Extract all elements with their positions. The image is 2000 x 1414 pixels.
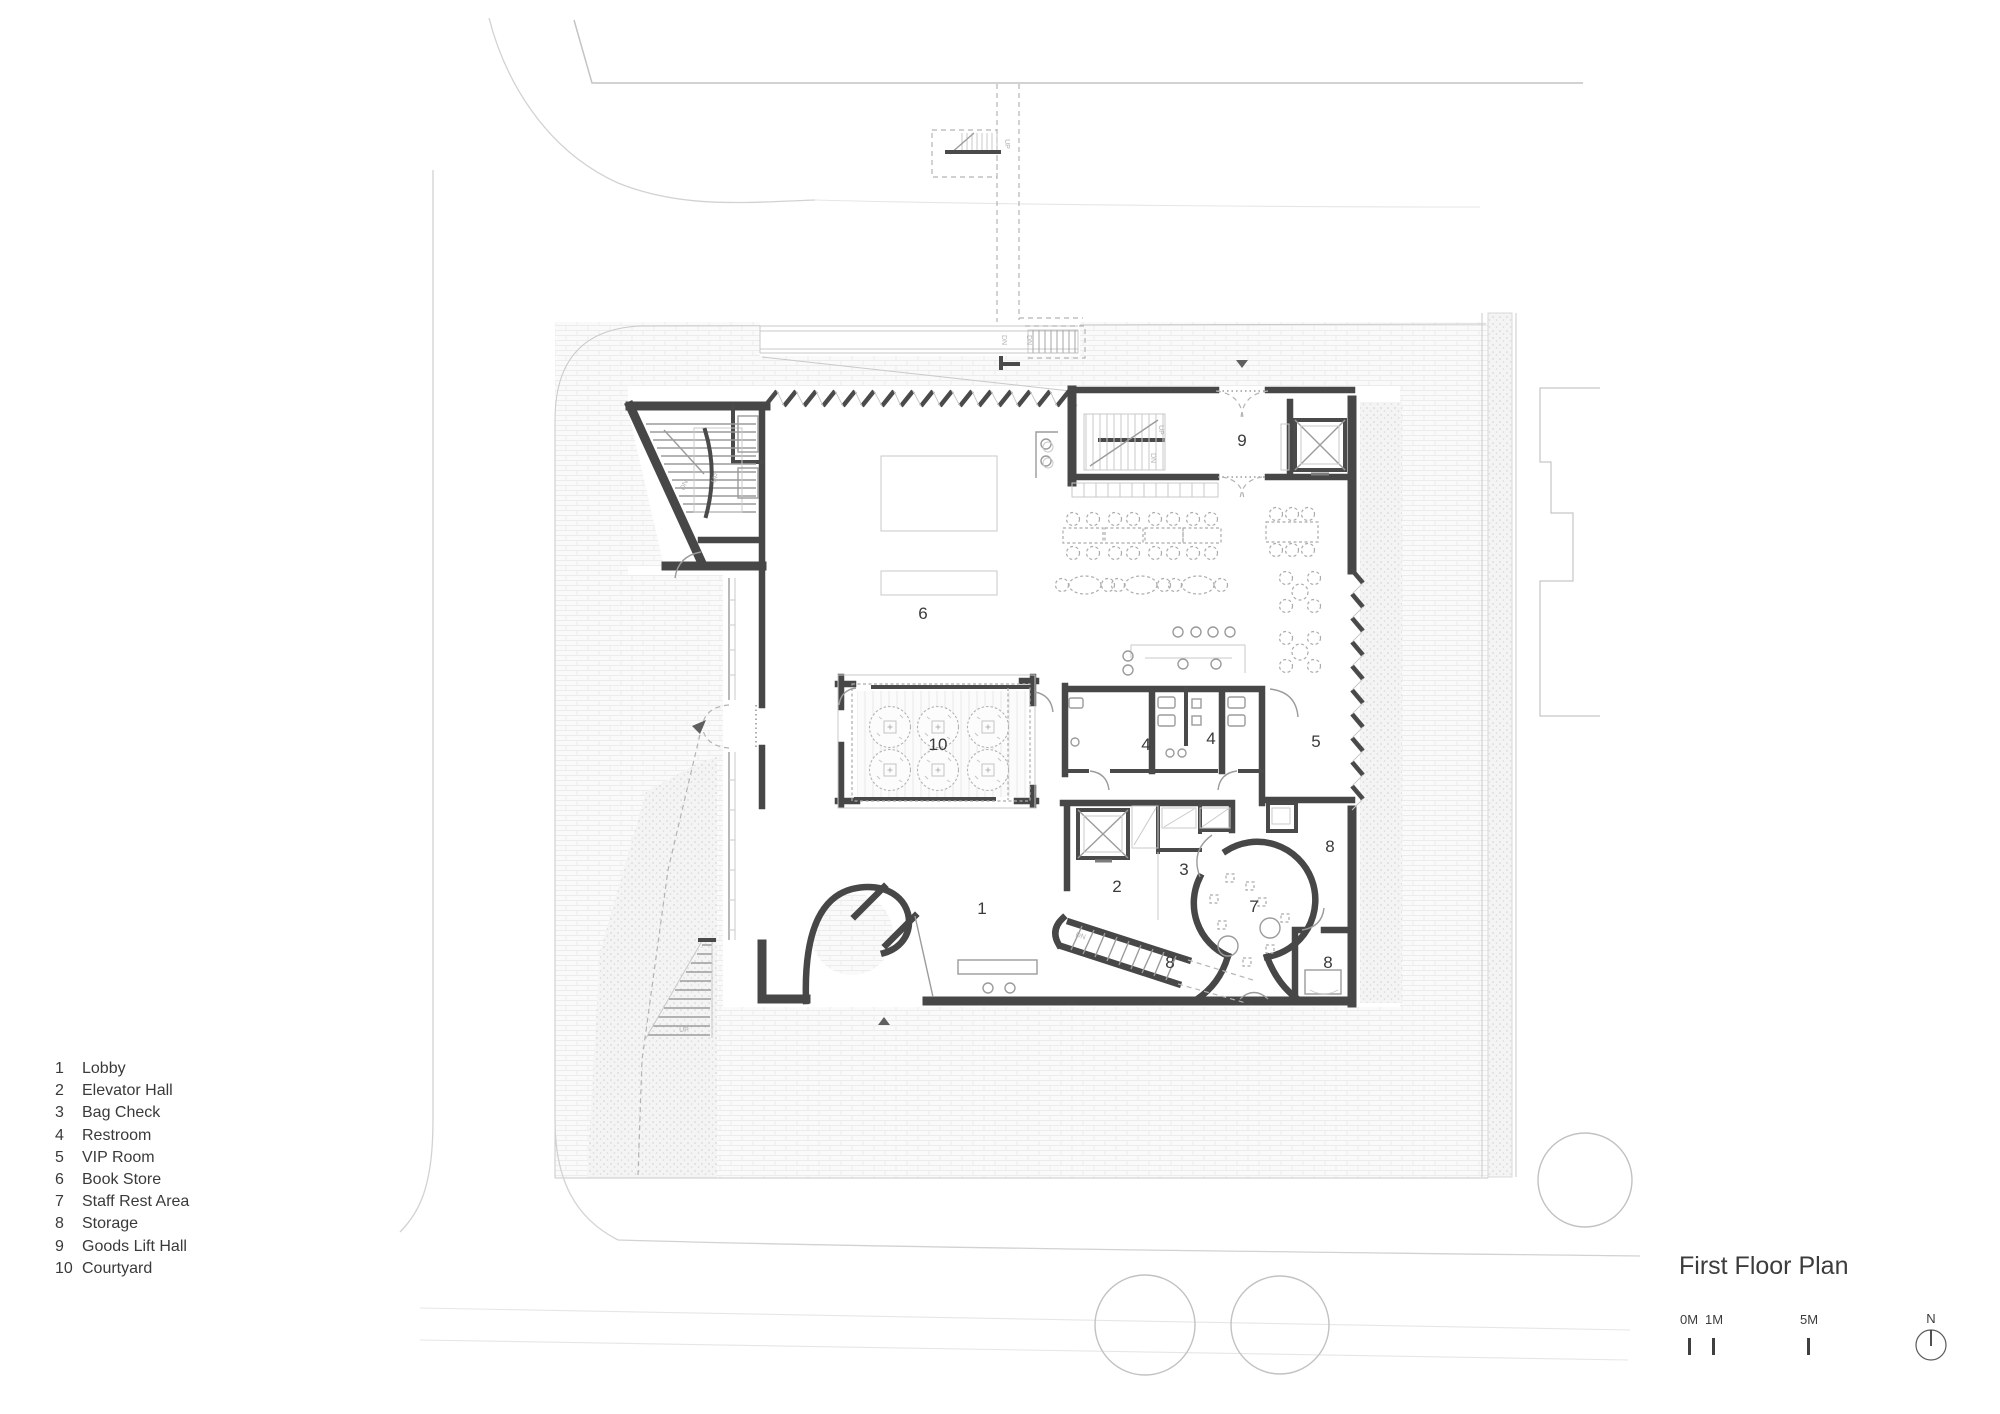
legend-row: 2Elevator Hall: [55, 1080, 189, 1102]
legend-row: 9Goods Lift Hall: [55, 1236, 189, 1258]
north-label: N: [1926, 1311, 1935, 1326]
scale-tick: [1688, 1338, 1691, 1355]
legend-number: 6: [55, 1169, 82, 1191]
legend-label: Goods Lift Hall: [82, 1236, 187, 1258]
room-number: 4: [1141, 735, 1150, 754]
room-number: 1: [977, 899, 986, 918]
room-number: 3: [1179, 860, 1188, 879]
legend-label: Restroom: [82, 1125, 151, 1147]
room-number: 8: [1165, 953, 1174, 972]
stair-direction-label: UP: [1003, 139, 1010, 149]
legend-number: 9: [55, 1236, 82, 1258]
legend-number: 3: [55, 1102, 82, 1124]
room-number: 9: [1237, 431, 1246, 450]
context-building-outline: [1540, 388, 1600, 716]
legend-row: 8Storage: [55, 1213, 189, 1235]
property-boundary: [574, 20, 1583, 83]
legend-label: Courtyard: [82, 1258, 152, 1280]
road-edge-left: [400, 170, 433, 1232]
legend-number: 1: [55, 1058, 82, 1080]
room-number: 7: [1249, 897, 1258, 916]
legend-label: VIP Room: [82, 1147, 155, 1169]
drawing-title: First Floor Plan: [1679, 1252, 1848, 1281]
legend-number: 5: [55, 1147, 82, 1169]
stair-direction-label: DN: [1000, 335, 1007, 345]
road-curve: [489, 18, 815, 203]
scale-bar: 0M 1M 5M: [1676, 1312, 1916, 1372]
legend-number: 4: [55, 1125, 82, 1147]
legend-label: Elevator Hall: [82, 1080, 173, 1102]
stair-direction-label: DN: [1025, 335, 1032, 345]
legend-label: Bag Check: [82, 1102, 160, 1124]
legend: 1Lobby2Elevator Hall3Bag Check4Restroom5…: [55, 1058, 189, 1280]
legend-row: 3Bag Check: [55, 1102, 189, 1124]
legend-row: 10Courtyard: [55, 1258, 189, 1280]
scale-label-5m: 5M: [1800, 1312, 1818, 1327]
legend-row: 4Restroom: [55, 1125, 189, 1147]
planting-strip: [1488, 313, 1512, 1177]
scale-label-0m: 0M: [1680, 1312, 1698, 1327]
legend-row: 5VIP Room: [55, 1147, 189, 1169]
street-tree-circle: [1538, 1133, 1632, 1227]
stair-direction-label: UP: [679, 1027, 689, 1034]
stair-direction-label: UP: [1157, 425, 1164, 435]
scale-label-1m: 1M: [1705, 1312, 1723, 1327]
legend-row: 6Book Store: [55, 1169, 189, 1191]
legend-number: 7: [55, 1191, 82, 1213]
canopy-stair: [1028, 330, 1078, 353]
legend-row: 1Lobby: [55, 1058, 189, 1080]
room-number: 6: [918, 604, 927, 623]
legend-label: Storage: [82, 1213, 138, 1235]
room-number: 4: [1206, 729, 1215, 748]
scale-tick: [1807, 1338, 1810, 1355]
legend-number: 8: [55, 1213, 82, 1235]
room-number: 5: [1311, 732, 1320, 751]
room-number: 8: [1323, 953, 1332, 972]
room-number: 8: [1325, 837, 1334, 856]
legend-number: 2: [55, 1080, 82, 1102]
room-number: 2: [1112, 877, 1121, 896]
room-number: 10: [929, 735, 948, 754]
street-tree-circle: [1231, 1276, 1329, 1374]
legend-label: Book Store: [82, 1169, 161, 1191]
stair-direction-label: DN: [1149, 453, 1156, 463]
walkway-dashed: [932, 84, 1083, 335]
legend-label: Staff Rest Area: [82, 1191, 189, 1213]
north-indicator: N: [1908, 1308, 1954, 1366]
legend-row: 7Staff Rest Area: [55, 1191, 189, 1213]
floor-plan-canvas: 12344567888910 UPDNDNDNUPUPDNDNUP: [0, 0, 2000, 1414]
street-tree-circle: [1095, 1275, 1195, 1375]
legend-label: Lobby: [82, 1058, 126, 1080]
scale-tick: [1712, 1338, 1715, 1355]
legend-number: 10: [55, 1258, 82, 1280]
floor-plan-sheet: 12344567888910 UPDNDNDNUPUPDNDNUP 1Lobby…: [0, 0, 2000, 1414]
